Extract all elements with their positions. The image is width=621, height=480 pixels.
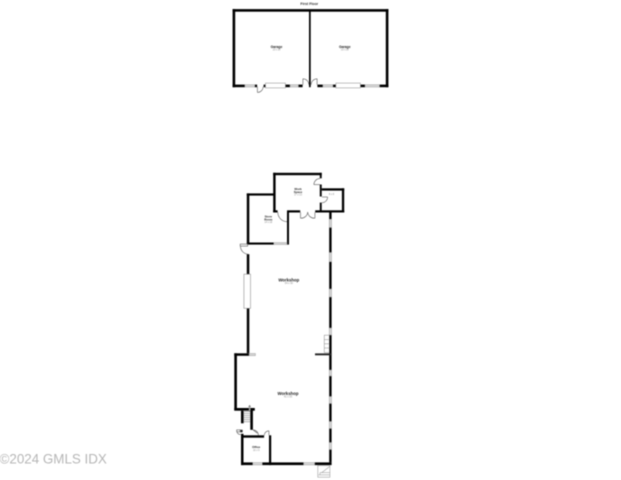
- svg-text:14 x 18: 14 x 18: [264, 221, 273, 224]
- svg-text:©2024 GMLS IDX: ©2024 GMLS IDX: [0, 451, 107, 466]
- svg-text:54 x 30: 54 x 30: [285, 282, 294, 285]
- svg-text:10 x 9: 10 x 9: [253, 449, 260, 452]
- svg-text:Garage: Garage: [339, 45, 351, 49]
- svg-text:First Floor: First Floor: [300, 2, 318, 6]
- svg-text:Garage: Garage: [271, 45, 283, 49]
- svg-text:8 x 8: 8 x 8: [329, 193, 335, 196]
- svg-text:23 x 23: 23 x 23: [341, 50, 349, 52]
- svg-text:17 x 13: 17 x 13: [294, 194, 303, 197]
- svg-text:41 x 35: 41 x 35: [284, 396, 293, 399]
- svg-text:23 x 23: 23 x 23: [273, 50, 281, 52]
